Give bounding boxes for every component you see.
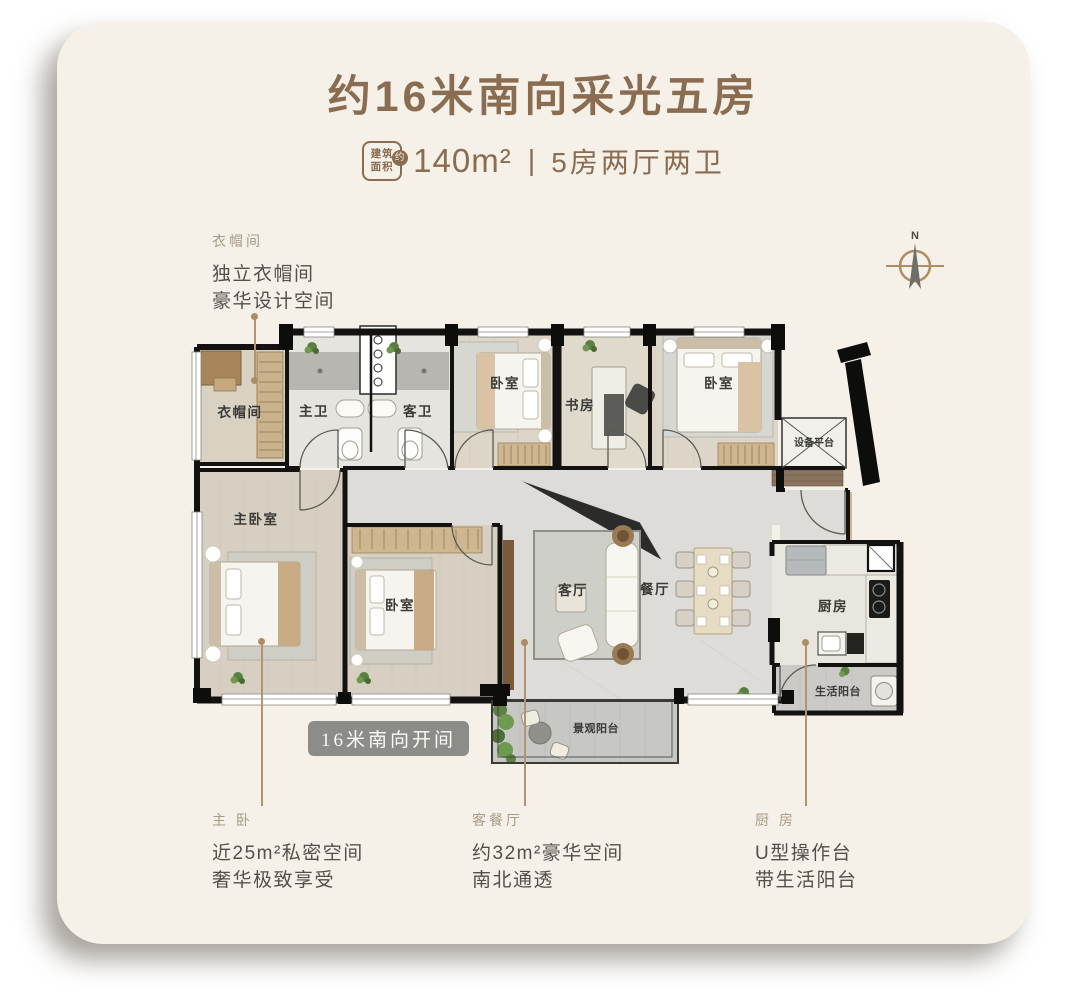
- area-label-line1: 建筑: [371, 148, 394, 161]
- label-master-bedroom: 主卧室: [234, 511, 279, 527]
- area-value: 140m²: [413, 142, 512, 180]
- leader-master-dot: [258, 638, 265, 645]
- label-service-balcony: 生活阳台: [815, 684, 861, 698]
- callout-master-line1: 近25m²私密空间: [212, 840, 364, 867]
- label-kitchen: 厨房: [818, 598, 848, 614]
- poster: 约16米南向采光五房 建筑 面积 约 140m² | 5房两厅两卫 N: [0, 0, 1080, 992]
- compass-north-label: N: [911, 230, 919, 242]
- area-label-line2: 面积: [371, 161, 394, 174]
- label-guest-bath: 客卫: [402, 403, 433, 419]
- area-approx-circle: 约: [392, 150, 408, 166]
- compass-icon: N: [878, 223, 954, 295]
- orientation-badge: 16米南向开间: [308, 721, 469, 756]
- callout-living-line1: 约32m²豪华空间: [472, 840, 624, 867]
- callout-kitchen-heading: 厨 房: [755, 810, 858, 830]
- callout-cloakroom-heading: 衣帽间: [212, 231, 335, 251]
- callout-cloakroom-line1: 独立衣帽间: [212, 261, 335, 288]
- label-living-room: 客厅: [557, 582, 588, 598]
- callout-living: 客餐厅 约32m²豪华空间 南北通透: [472, 810, 624, 894]
- callout-master-heading: 主 卧: [212, 810, 364, 830]
- leader-kitchen-dot: [802, 639, 809, 646]
- label-cloakroom: 衣帽间: [218, 404, 263, 420]
- label-study: 书房: [565, 397, 595, 413]
- area-label-badge: 建筑 面积 约: [362, 141, 402, 181]
- callout-master: 主 卧 近25m²私密空间 奢华极致享受: [212, 810, 364, 894]
- label-bedroom-top-left: 卧室: [490, 375, 520, 391]
- header-spec-row: 建筑 面积 约 140m² | 5房两厅两卫: [57, 141, 1030, 181]
- callout-cloakroom: 衣帽间 独立衣帽间 豪华设计空间: [212, 231, 335, 315]
- label-view-balcony: 景观阳台: [572, 721, 619, 735]
- callout-kitchen: 厨 房 U型操作台 带生活阳台: [755, 810, 858, 894]
- label-master-bath: 主卫: [299, 403, 329, 419]
- callout-living-heading: 客餐厅: [472, 810, 624, 830]
- callout-living-line2: 南北通透: [472, 867, 624, 894]
- leader-master: [261, 642, 263, 806]
- leader-living-dot: [521, 639, 528, 646]
- label-dining-room: 餐厅: [639, 581, 670, 597]
- label-equipment-platform: 设备平台: [794, 436, 834, 449]
- label-bedroom-top-right: 卧室: [704, 375, 734, 391]
- callout-master-line2: 奢华极致享受: [212, 867, 364, 894]
- layout-spec: 5房两厅两卫: [551, 141, 725, 181]
- page-title: 约16米南向采光五房: [57, 62, 1030, 124]
- service-balcony-furniture: [871, 676, 897, 706]
- leader-cloakroom-dot-bottom: [251, 377, 258, 384]
- divider-bar: |: [523, 145, 541, 178]
- callout-cloakroom-line2: 豪华设计空间: [212, 288, 335, 315]
- label-bedroom-south: 卧室: [385, 597, 415, 613]
- leader-living: [524, 643, 526, 806]
- callout-kitchen-line2: 带生活阳台: [755, 867, 858, 894]
- dining-furniture: [676, 548, 750, 634]
- leader-cloakroom: [254, 318, 256, 380]
- callout-kitchen-line1: U型操作台: [755, 840, 858, 867]
- leader-kitchen: [805, 643, 807, 806]
